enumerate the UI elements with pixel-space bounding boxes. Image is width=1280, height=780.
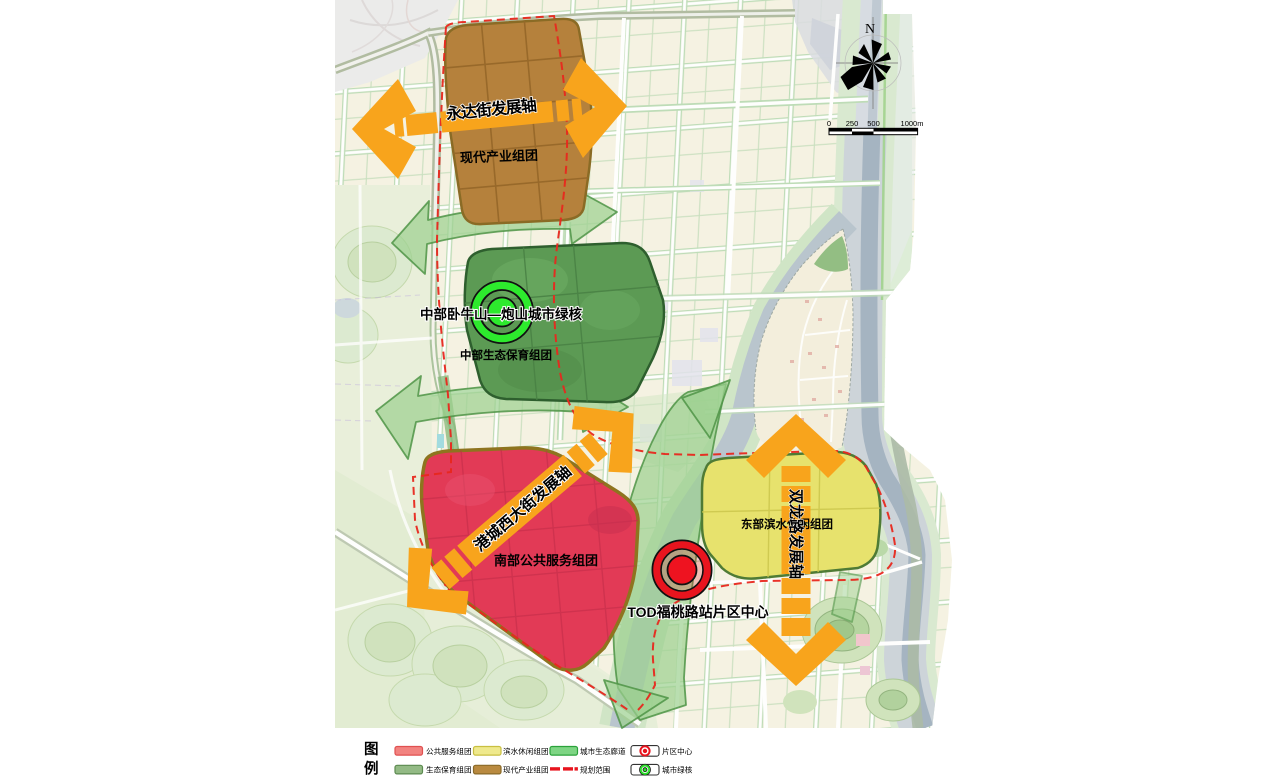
svg-text:东部滨水休闲组团: 东部滨水休闲组团 — [741, 517, 833, 531]
svg-text:250: 250 — [846, 119, 859, 128]
svg-text:片区中心: 片区中心 — [662, 746, 693, 756]
svg-text:生态保育组团: 生态保育组团 — [426, 765, 472, 775]
svg-text:南部公共服务组团: 南部公共服务组团 — [494, 553, 598, 568]
svg-text:例: 例 — [364, 760, 379, 778]
svg-text:中部生态保育组团: 中部生态保育组团 — [460, 348, 552, 362]
svg-text:500: 500 — [867, 119, 880, 128]
svg-text:中部卧牛山—炮山城市绿核: 中部卧牛山—炮山城市绿核 — [420, 306, 582, 322]
svg-text:1000m: 1000m — [901, 119, 924, 128]
svg-text:现代产业组团: 现代产业组团 — [460, 148, 538, 166]
svg-text:城市生态廊道: 城市生态廊道 — [580, 746, 626, 756]
svg-text:N: N — [865, 22, 875, 37]
svg-text:TOD福桃路站片区中心: TOD福桃路站片区中心 — [627, 604, 768, 620]
svg-text:滨水休闲组团: 滨水休闲组团 — [503, 746, 549, 756]
svg-text:图: 图 — [364, 741, 379, 758]
svg-text:公共服务组团: 公共服务组团 — [426, 746, 472, 756]
svg-text:规划范围: 规划范围 — [580, 765, 610, 775]
svg-text:0: 0 — [827, 119, 831, 128]
svg-text:现代产业组团: 现代产业组团 — [503, 765, 549, 775]
svg-text:双龙路发展轴: 双龙路发展轴 — [787, 489, 805, 579]
svg-text:城市绿核: 城市绿核 — [662, 765, 693, 775]
